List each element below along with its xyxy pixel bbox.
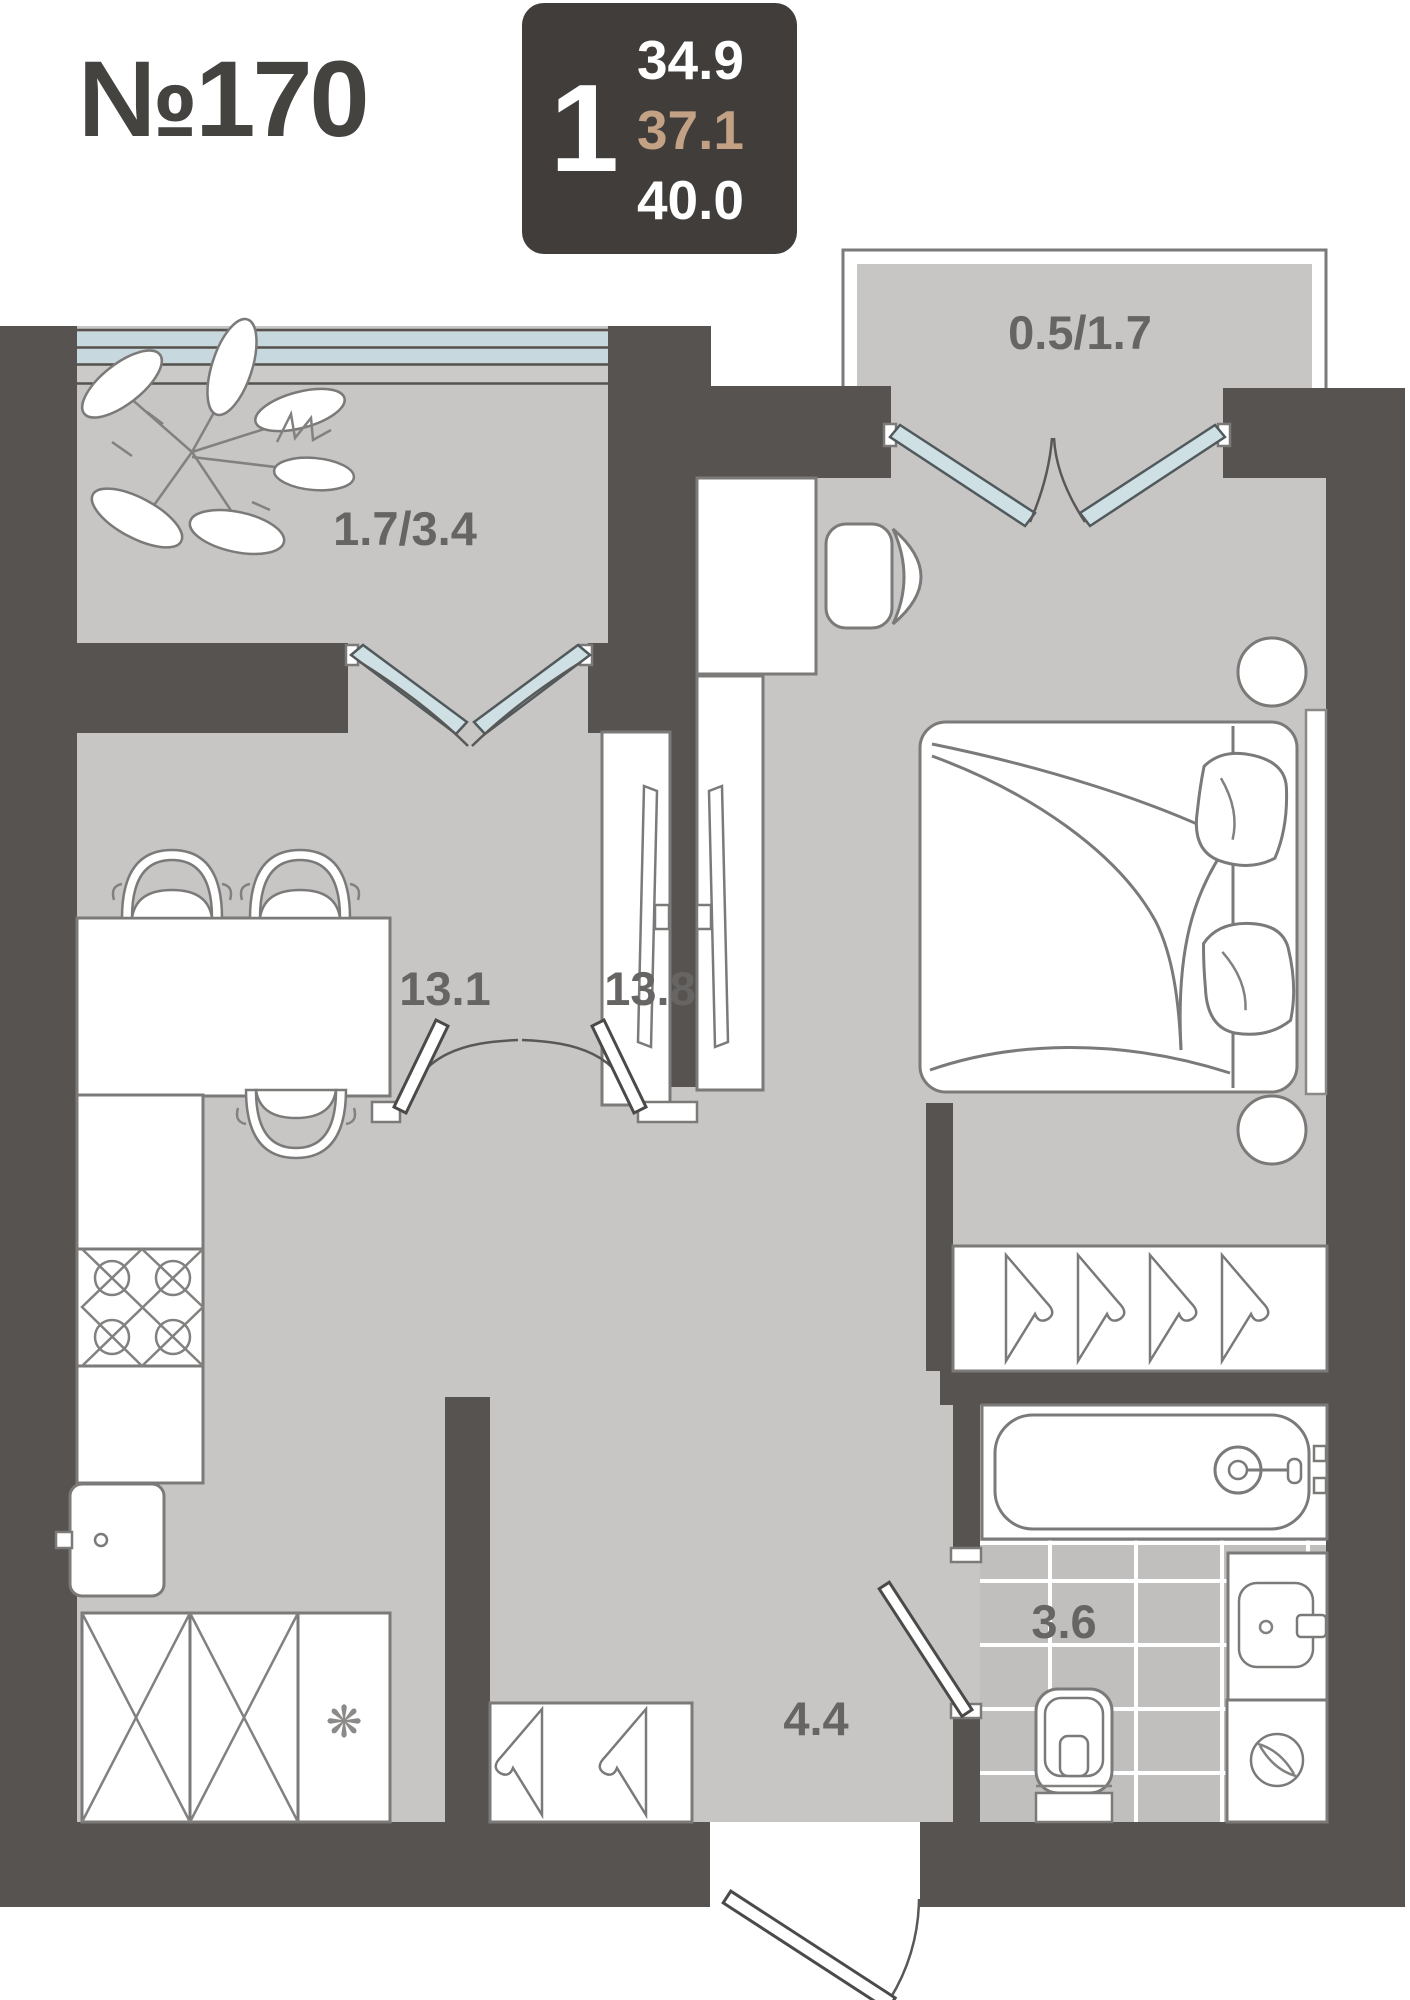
label-bedroom: 13.8 xyxy=(604,962,695,1015)
wardrobe-hallway xyxy=(490,1703,692,1822)
label-bathroom: 3.6 xyxy=(1031,1595,1096,1648)
side-table xyxy=(1238,1096,1306,1164)
pillow xyxy=(1200,919,1298,1038)
bathtub xyxy=(982,1405,1327,1539)
wardrobe-bedroom xyxy=(953,1246,1327,1371)
label-hallway: 4.4 xyxy=(783,1692,848,1745)
closet xyxy=(697,478,816,674)
label-balcony-right: 0.5/1.7 xyxy=(1008,306,1152,359)
pillow xyxy=(1192,750,1292,870)
floor-plan-page: №170 1 34.9 37.1 40.0 xyxy=(0,0,1410,2000)
entrance-door xyxy=(723,1891,919,2000)
side-table xyxy=(1238,638,1306,706)
storage-cabinets: ❋ xyxy=(82,1613,390,1822)
label-balcony-left: 1.7/3.4 xyxy=(333,502,477,555)
washing-machine xyxy=(1227,1700,1327,1822)
tv-console-bedroom xyxy=(697,676,763,1090)
window-niche xyxy=(1306,710,1326,1094)
toilet xyxy=(1036,1689,1112,1822)
washbasin xyxy=(1228,1553,1327,1700)
kitchen-sink xyxy=(56,1484,164,1596)
label-kitchen-living: 13.1 xyxy=(399,962,490,1015)
floor-plan: ❋ xyxy=(0,0,1410,2000)
freezer-symbol: ❋ xyxy=(326,1697,363,1748)
dining-table xyxy=(77,918,390,1096)
